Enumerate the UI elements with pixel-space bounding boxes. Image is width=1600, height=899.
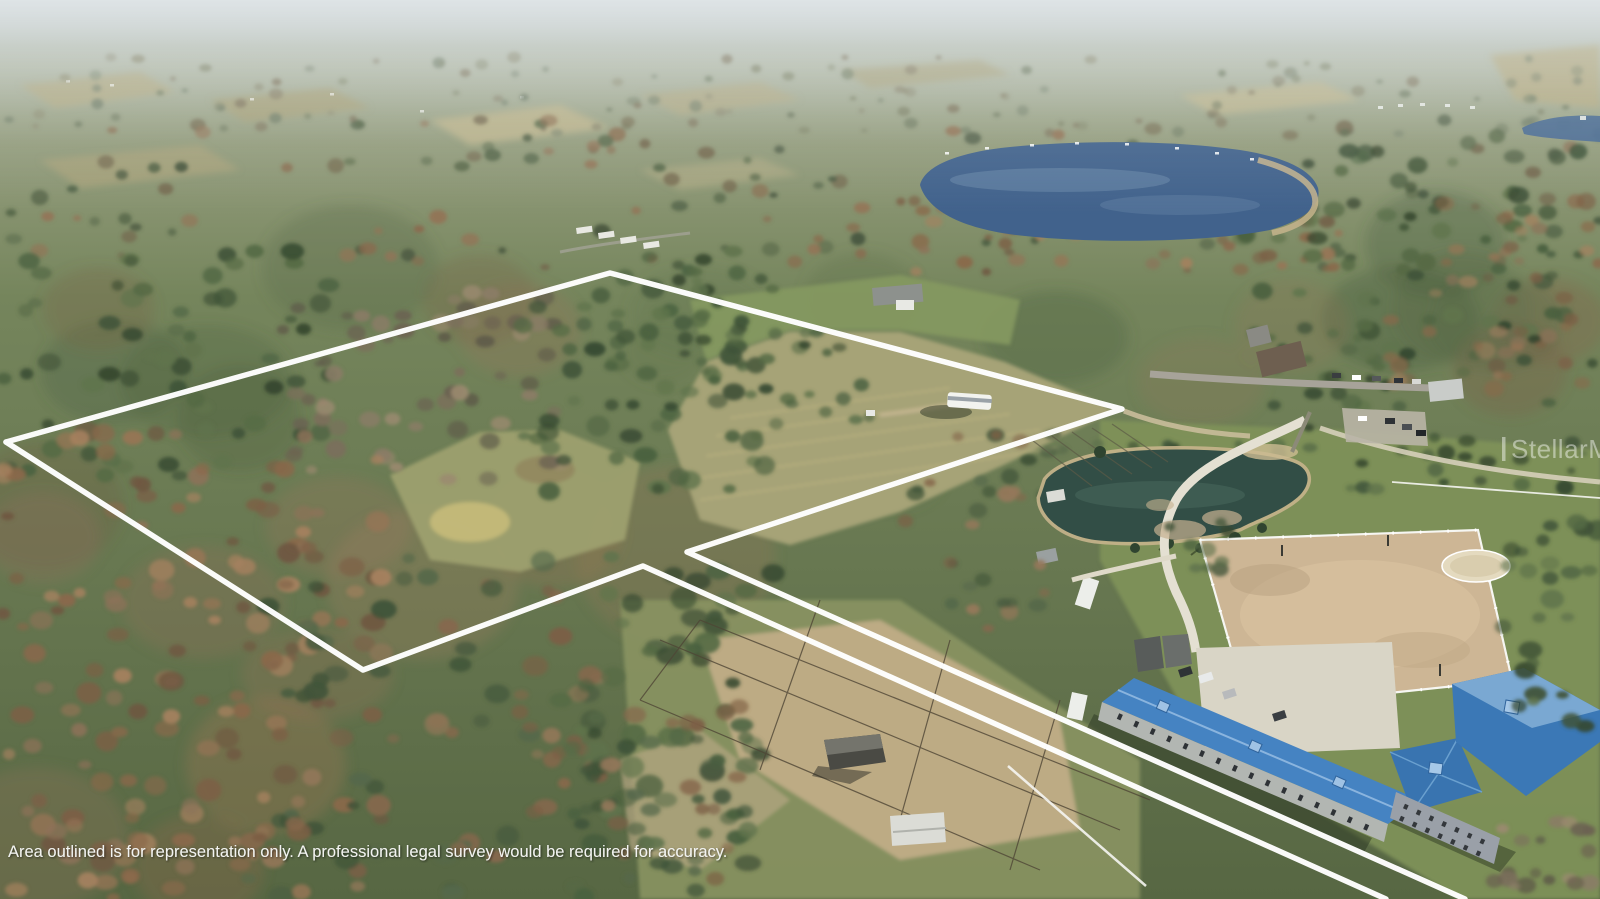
disclaimer-text: Area outlined is for representation only… xyxy=(8,843,727,861)
stellar-mls-logo-bar xyxy=(1502,437,1506,461)
aerial-photo-canvas: StellarMLS Area outlined is for represen… xyxy=(0,0,1600,899)
watermark: StellarMLS xyxy=(1502,434,1600,464)
atmospheric-haze xyxy=(0,0,1600,899)
stellar-mls-watermark: StellarMLS xyxy=(1511,434,1600,464)
aerial-photo: StellarMLS Area outlined is for represen… xyxy=(0,0,1600,899)
